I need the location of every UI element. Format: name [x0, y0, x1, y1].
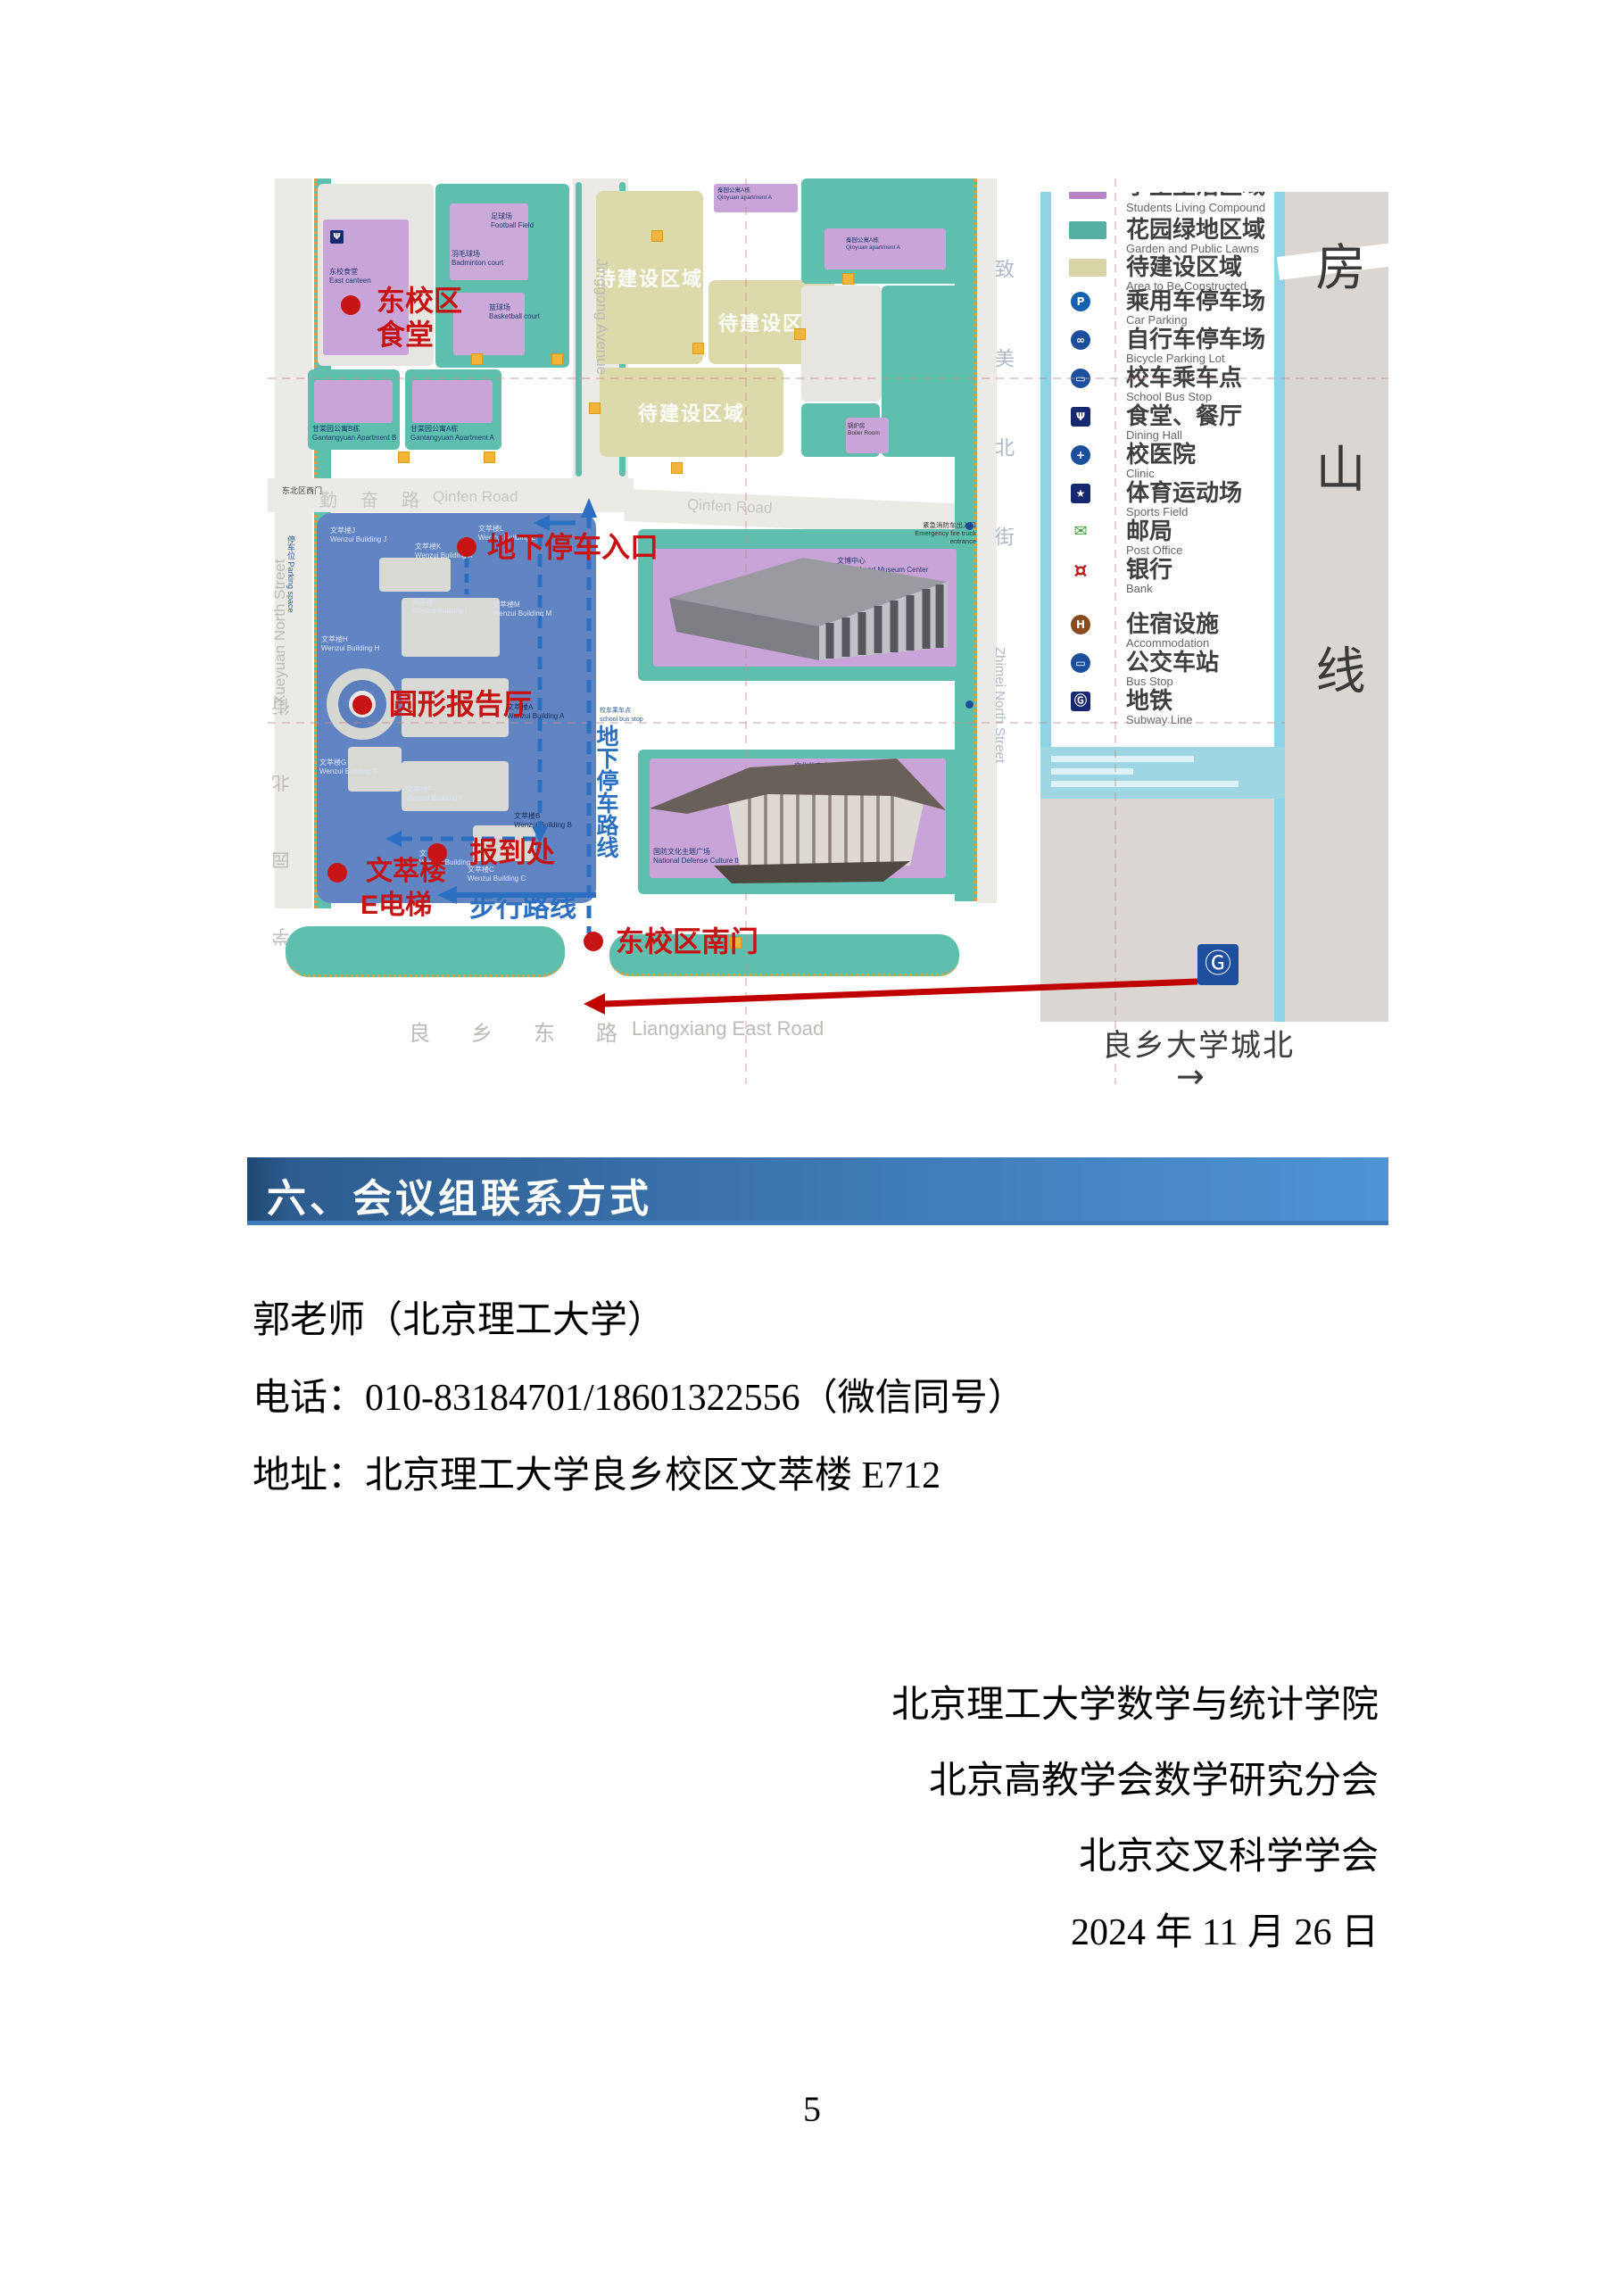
to-be-built-area-3: 待建设区域 — [600, 368, 783, 457]
legend-label: 待建设区域 — [1126, 255, 1242, 279]
legend-label: 校车乘车点 — [1126, 366, 1242, 390]
canteen-dot — [341, 295, 360, 315]
contact-address-line: 地址：北京理工大学良乡校区文萃楼 E712 — [253, 1454, 940, 1498]
qinfen-road-label-zh: 勤奋路 — [319, 485, 443, 511]
parking-entrance-annotation: 地下停车入口 — [487, 532, 659, 562]
legend-label-en: Subway Line — [1126, 714, 1192, 726]
to-be-built-area-1: 待建设区域 — [596, 191, 703, 364]
map-legend: 学生生活区域 Students Living Compound 花园绿地区域 G… — [1051, 192, 1274, 745]
subway-station-icon: Ⓖ — [1197, 944, 1239, 985]
legend-label: 食堂、餐厅 — [1126, 404, 1242, 428]
subway-line-strip — [1274, 192, 1285, 1022]
jinggong-avenue-label: Jinggong Avenue — [592, 259, 610, 375]
canteen-annotation-1: 东校区 — [377, 286, 462, 316]
fangshan-line-label: 房山线 — [1301, 241, 1373, 955]
to-be-built-label: 待建设区域 — [638, 398, 745, 427]
round-hall-annotation: 圆形报告厅 — [389, 689, 532, 719]
canteen-annotation-2: 食堂 — [377, 319, 434, 350]
legend-label-en: Car Parking — [1126, 314, 1188, 327]
to-be-built-swatch — [1069, 259, 1106, 277]
contact-phone-line: 电话：010-83184701/18601322556（微信同号） — [253, 1376, 1025, 1421]
signature-line-2: 北京高教学会数学研究分会 — [929, 1759, 1379, 1803]
zhimei-street-label-en: Zhimei North Street — [992, 647, 1007, 897]
legend-label: 自行车停车场 — [1126, 327, 1265, 352]
bus-stop-icon: ▭ — [1071, 653, 1090, 673]
legend-label-en: Bicycle Parking Lot — [1126, 352, 1225, 365]
gate-marker — [692, 343, 704, 354]
gate-marker — [551, 353, 563, 365]
legend-label: 花园绿地区域 — [1126, 218, 1265, 242]
gate-marker — [794, 328, 806, 340]
qinfen-road-east-label: Qinfen Road — [687, 496, 773, 518]
gate-marker — [589, 402, 601, 414]
badminton-court-label: 羽毛球场 Badminton court — [452, 250, 503, 267]
boiler-label: 锅炉房 Boiler Room — [848, 423, 880, 437]
garden-swatch — [1069, 221, 1106, 239]
qinfen-road-label-en: Qinfen Road — [433, 488, 518, 506]
jinggong-median — [576, 182, 582, 477]
legend-label-en: Accommodation — [1126, 637, 1209, 650]
gate-marker — [671, 462, 683, 474]
gantangyuan-a-building — [412, 380, 493, 423]
bank-icon: ¤ — [1071, 560, 1090, 580]
museum-label: 文博中心 Cultural and Museum Center — [837, 557, 928, 574]
qinyuan-plot — [801, 286, 882, 402]
wenzui-F-label: 文萃楼F Wenzui Building F — [406, 785, 463, 802]
section-header-bar: 六、会议组联系方式 — [247, 1157, 1388, 1225]
defense-square-label: 国防文化主题广场 National Defense Culture theme … — [653, 848, 780, 865]
east-canteen-label: 东校食堂 East canteen — [329, 268, 371, 285]
gate-marker — [651, 230, 663, 242]
liangxiang-road-label-zh: 良乡东路 — [409, 1015, 659, 1047]
gate-marker — [842, 273, 854, 285]
wencui-dot — [327, 863, 347, 883]
legend-label: 体育运动场 — [1126, 481, 1242, 505]
wenzui-J-label: 文萃楼J Wenzui Building J — [330, 526, 386, 543]
south-gate-annotation: 东校区南门 — [616, 926, 758, 957]
legend-label: 乘用车停车场 — [1126, 289, 1265, 313]
car-parking-icon: P — [1071, 292, 1090, 311]
legend-label: 校医院 — [1126, 443, 1196, 467]
northeast-gate-label: 东北区西门 — [282, 487, 322, 496]
signature-line-3: 北京交叉科学学会 — [1079, 1835, 1379, 1879]
liangxiang-road-label-en: Liangxiang East Road — [632, 1017, 824, 1040]
basketball-court-label: 篮球场 Basketball court — [489, 303, 540, 320]
gantangyuan-a-label: 甘棠园公寓A栋 Gantangyuan Apartment A — [410, 425, 494, 442]
elevator-annotation: E电梯 — [360, 891, 432, 921]
south-edge-west — [286, 926, 565, 977]
students-living-swatch — [1069, 192, 1106, 199]
zhimei-street-label-zh: 致美北街 — [989, 259, 1017, 634]
signature-line-1: 北京理工大学数学与统计学院 — [891, 1683, 1379, 1728]
contact-name-line: 郭老师（北京理工大学） — [253, 1298, 665, 1343]
legend-label: 学生生活区域 — [1126, 192, 1265, 198]
sports-field-icon: ★ — [1071, 484, 1090, 503]
legend-label-en: Clinic — [1126, 468, 1155, 480]
document-page: Xueyuan North Street 学园北街 东北区西门 停车位 Park… — [0, 0, 1624, 2296]
fangshan-strip-lower — [1040, 799, 1285, 1022]
legend-label-en: Sports Field — [1126, 506, 1188, 518]
wencui-annotation: 文萃楼 — [366, 857, 446, 887]
legend-label-en: Bus Stop — [1126, 676, 1173, 688]
clinic-icon: + — [1071, 445, 1090, 465]
wenzui-H-label: 文萃楼H Wenzui Building H — [321, 635, 379, 652]
football-field-label: 足球场 Football Field — [491, 212, 534, 229]
legend-label: 住宿设施 — [1126, 612, 1219, 636]
gantangyuan-b-label: 甘棠园公寓B栋 Gantangyuan Apartment B — [312, 425, 396, 442]
wenzui-G-label: 文萃楼G Wenzui Building G — [319, 758, 378, 775]
subway-icon: Ⓖ — [1071, 692, 1090, 711]
qinyuan-label-2: 秦园公寓A栋 Qinyuan apartment A — [846, 237, 900, 252]
legend-label-en: Students Living Compound — [1126, 202, 1265, 214]
fire-entrance-label: 紧急消防车出入口 Emergency fire truck entrance — [903, 521, 976, 545]
gate-marker — [484, 452, 495, 463]
school-bus-icon: ▭ — [1071, 369, 1090, 388]
wenzui-I-label: 文萃楼I Wenzui Building I — [412, 598, 468, 615]
campus-map: Xueyuan North Street 学园北街 东北区西门 停车位 Park… — [268, 178, 1388, 1099]
map-credits-box — [1040, 747, 1285, 799]
parking-route-annotation: 地下停车路线 — [594, 725, 617, 903]
legend-label-en: School Bus Stop — [1126, 391, 1212, 403]
gate-marker — [471, 353, 483, 365]
checkin-annotation: 报到处 — [469, 837, 555, 867]
wenzui-M-label: 文萃楼M Wenzui Building M — [493, 601, 551, 618]
bus-marker-icon — [965, 700, 974, 709]
section-title: 六、会议组联系方式 — [247, 1157, 1388, 1223]
school-bus-stop-label: 校车乘车点 school bus stop — [600, 707, 643, 724]
basketball-court — [453, 293, 525, 355]
legend-label-en: Post Office — [1126, 544, 1182, 557]
gate-marker — [398, 452, 410, 463]
signature-line-4: 2024 年 11 月 26 日 — [1071, 1911, 1379, 1955]
post-office-icon: ✉ — [1071, 522, 1090, 542]
accommodation-icon: H — [1071, 615, 1090, 634]
subway-direction-arrow: → — [1176, 1057, 1205, 1096]
east-green-block — [882, 286, 962, 457]
walk-route-annotation: 步行路线 — [469, 893, 576, 924]
parking-space-label: 停车位 Parking space — [286, 535, 297, 642]
legend-left-border — [1040, 192, 1051, 799]
wenzui-B-label: 文萃楼B Wenzui Building B — [514, 812, 572, 829]
to-be-built-label: 待建设区域 — [596, 263, 703, 292]
legend-label-en: Bank — [1126, 583, 1153, 595]
dining-hall-icon: Ψ — [330, 230, 344, 244]
page-number: 5 — [0, 2088, 1624, 2130]
qinyuan-label-1: 秦园公寓A栋 Qinyuan apartment A — [717, 187, 772, 202]
parking-entrance-dot — [457, 537, 476, 557]
gantangyuan-b-building — [314, 380, 393, 423]
legend-label: 邮局 — [1126, 519, 1172, 543]
bicycle-parking-icon: ∞ — [1071, 330, 1090, 350]
sports-center-label: 文化体育中心 Culture and Sports Center — [794, 762, 877, 779]
legend-label-en: Dining Hall — [1126, 429, 1182, 442]
dining-hall-icon: Ψ — [1071, 407, 1090, 427]
south-gate-dot — [584, 932, 603, 951]
legend-label: 地铁 — [1126, 689, 1172, 713]
round-hall-dot — [352, 695, 372, 715]
xueyuan-street-label-zh: 学园北街 — [269, 678, 295, 946]
legend-label: 公交车站 — [1126, 651, 1219, 675]
legend-label: 银行 — [1126, 558, 1172, 582]
